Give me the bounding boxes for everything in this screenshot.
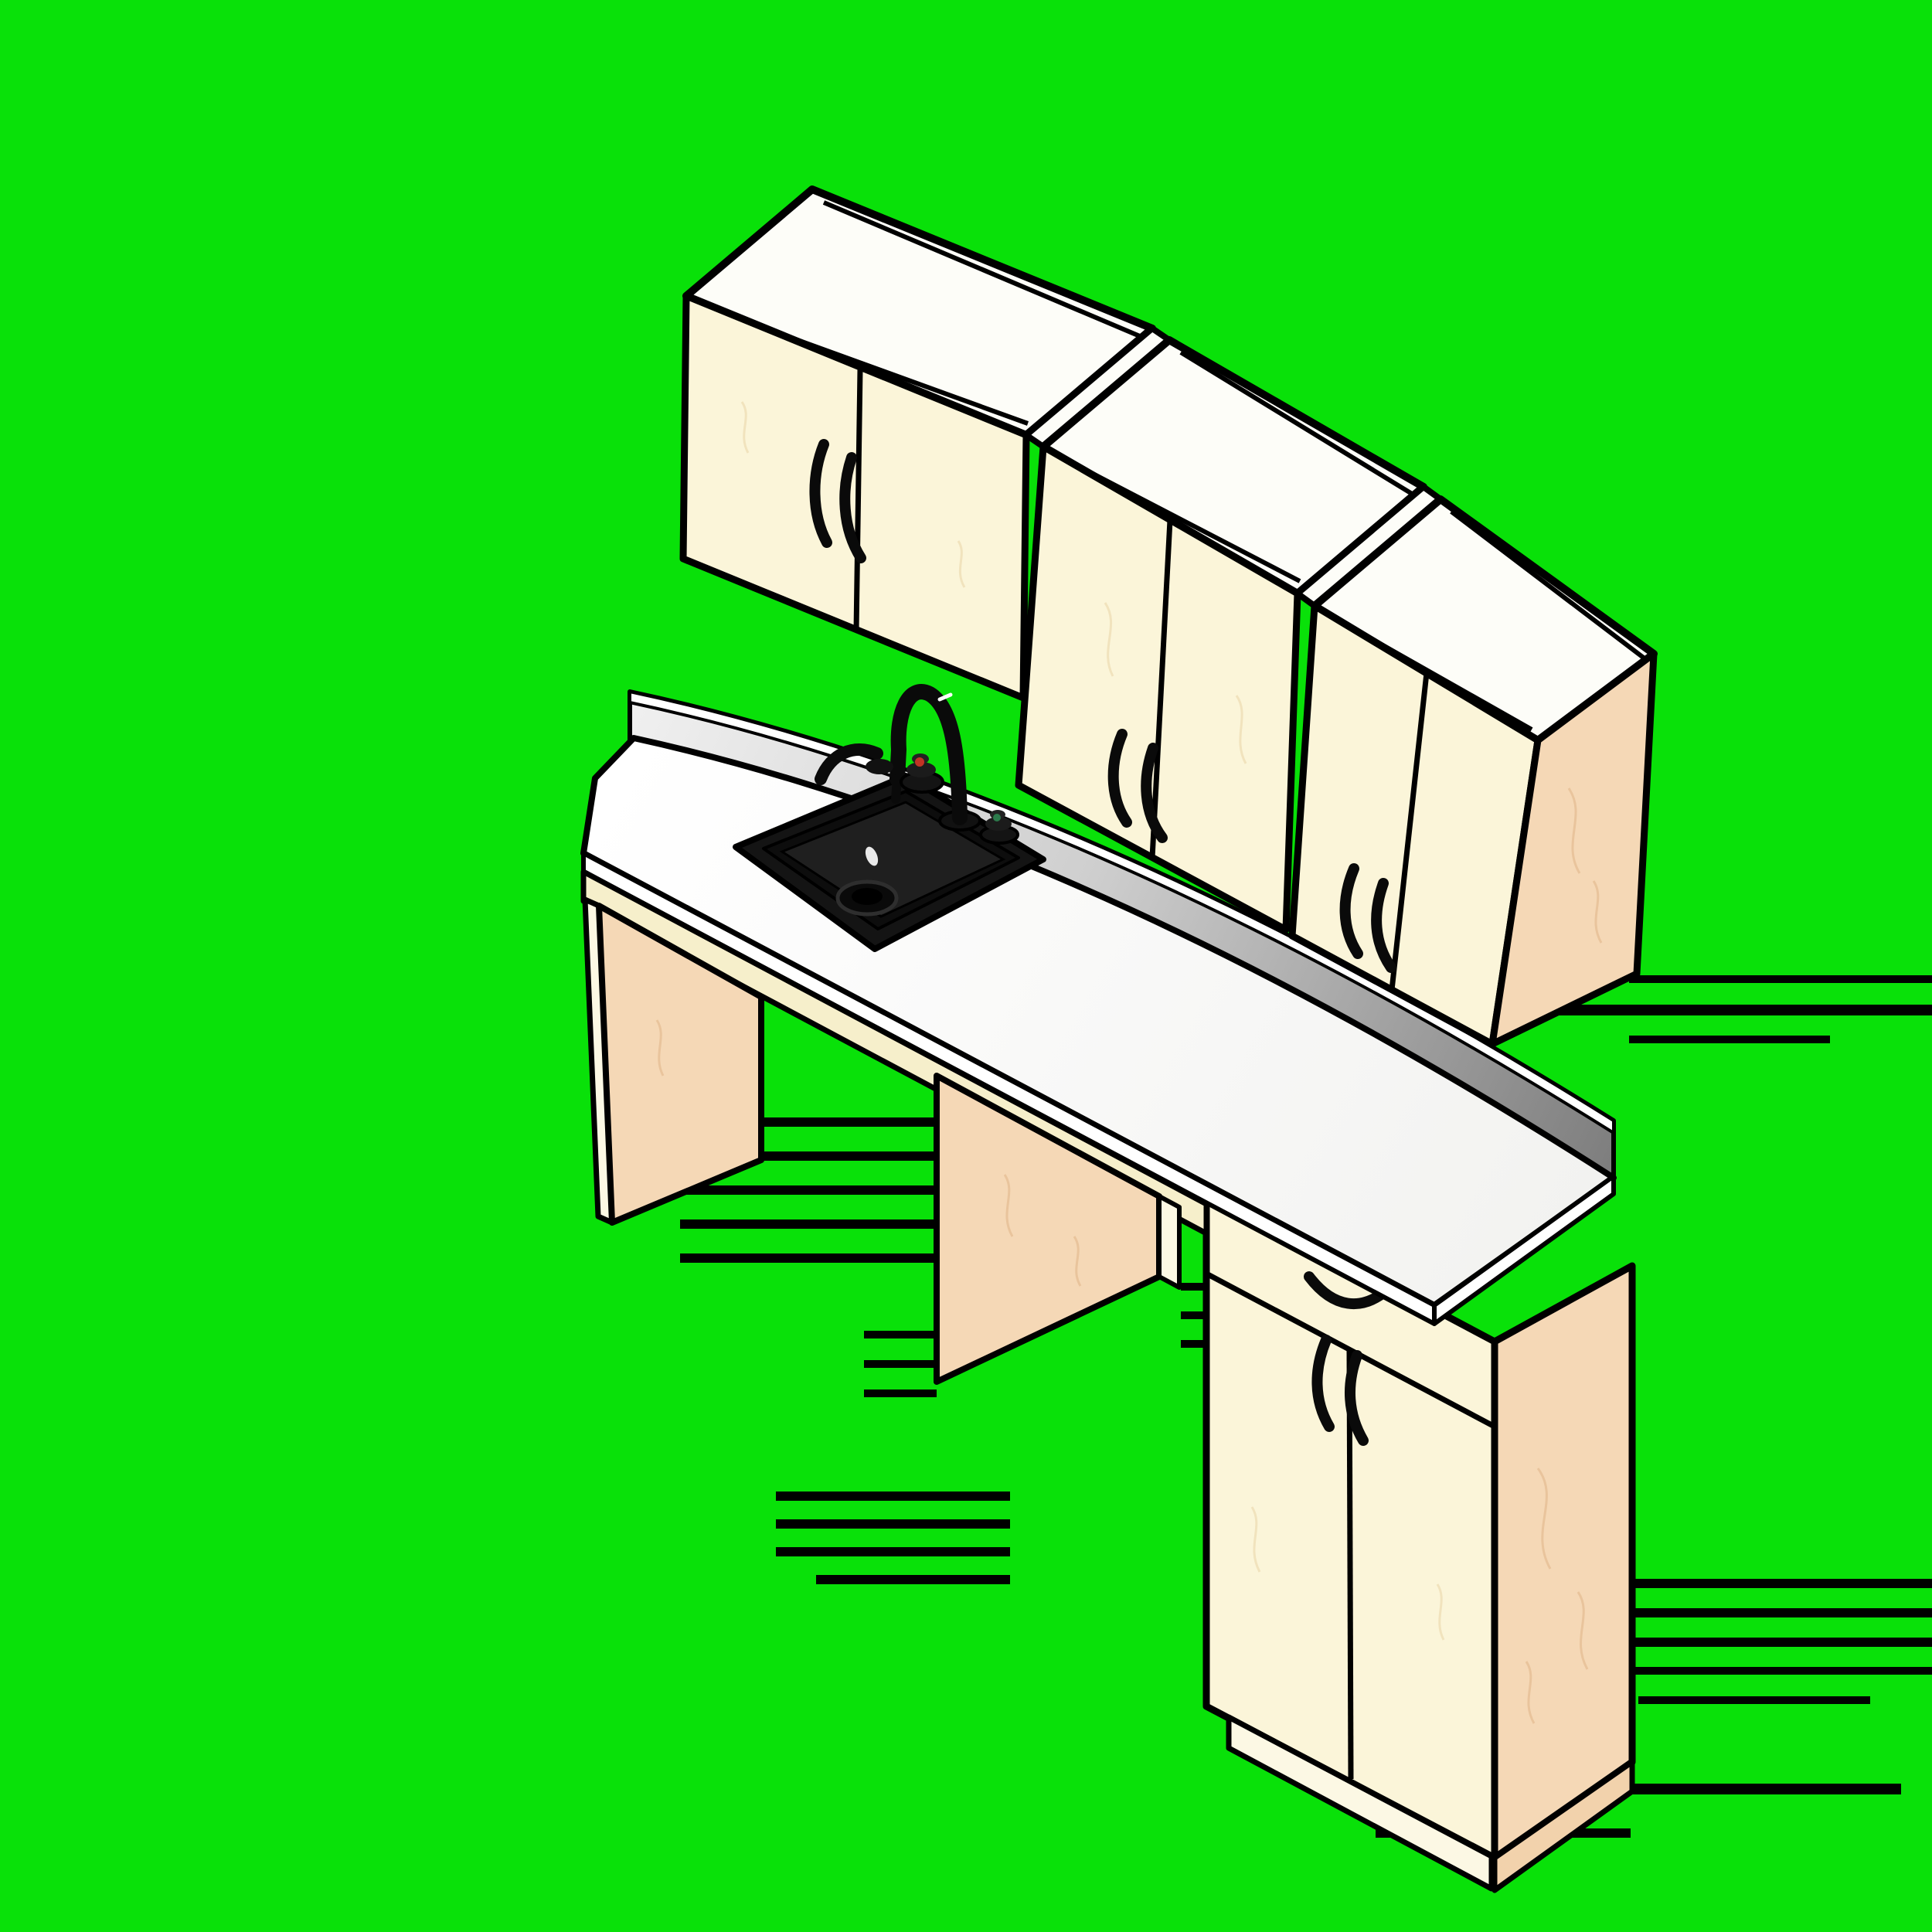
glitch-stripe [864, 1331, 937, 1338]
sprayer-base [866, 759, 893, 774]
sink-drain-hole [852, 888, 883, 905]
glitch-stripe [864, 1360, 937, 1368]
glitch-stripe [1592, 1667, 1932, 1675]
glitch-stripe [864, 1389, 937, 1397]
glitch-stripe [816, 1575, 1010, 1584]
glitch-stripe [1629, 1036, 1830, 1043]
spout-nozzle [896, 779, 897, 799]
hot-dot [915, 757, 924, 767]
middle-panel-front-edge [1159, 1196, 1179, 1287]
render-stage [0, 0, 1932, 1932]
door-seam [856, 369, 860, 631]
cold-dot [993, 814, 1001, 821]
glitch-stripe [776, 1492, 1010, 1501]
cabinet-render [0, 0, 1932, 1932]
glitch-stripe [1638, 1696, 1870, 1704]
wall-cabinet-3 [1292, 499, 1654, 1044]
glitch-stripe [776, 1547, 1010, 1556]
base-cabinet-side-panel [1495, 1266, 1632, 1858]
glitch-stripe [776, 1519, 1010, 1529]
glitch-stripe [680, 1219, 937, 1229]
glitch-stripe [1629, 975, 1932, 983]
glitch-stripe [680, 1253, 937, 1263]
